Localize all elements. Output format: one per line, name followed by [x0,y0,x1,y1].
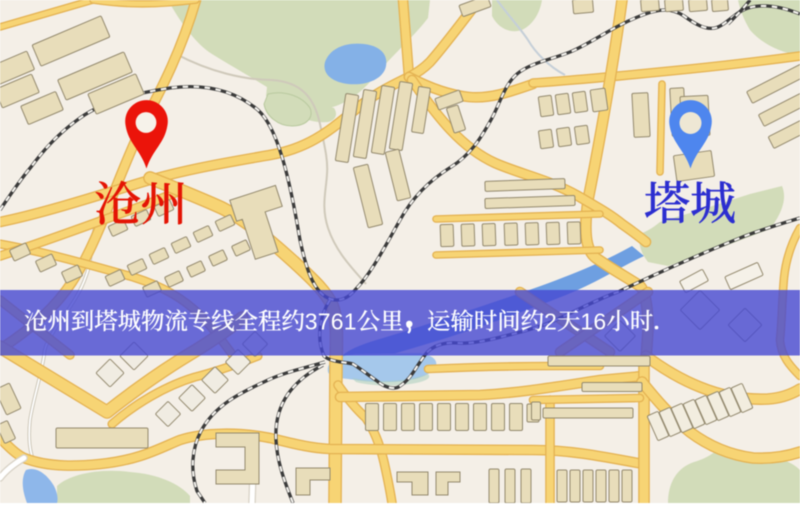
svg-text:3761: 3761 [305,308,357,334]
svg-text:16: 16 [580,308,606,334]
svg-text:2: 2 [544,308,557,334]
